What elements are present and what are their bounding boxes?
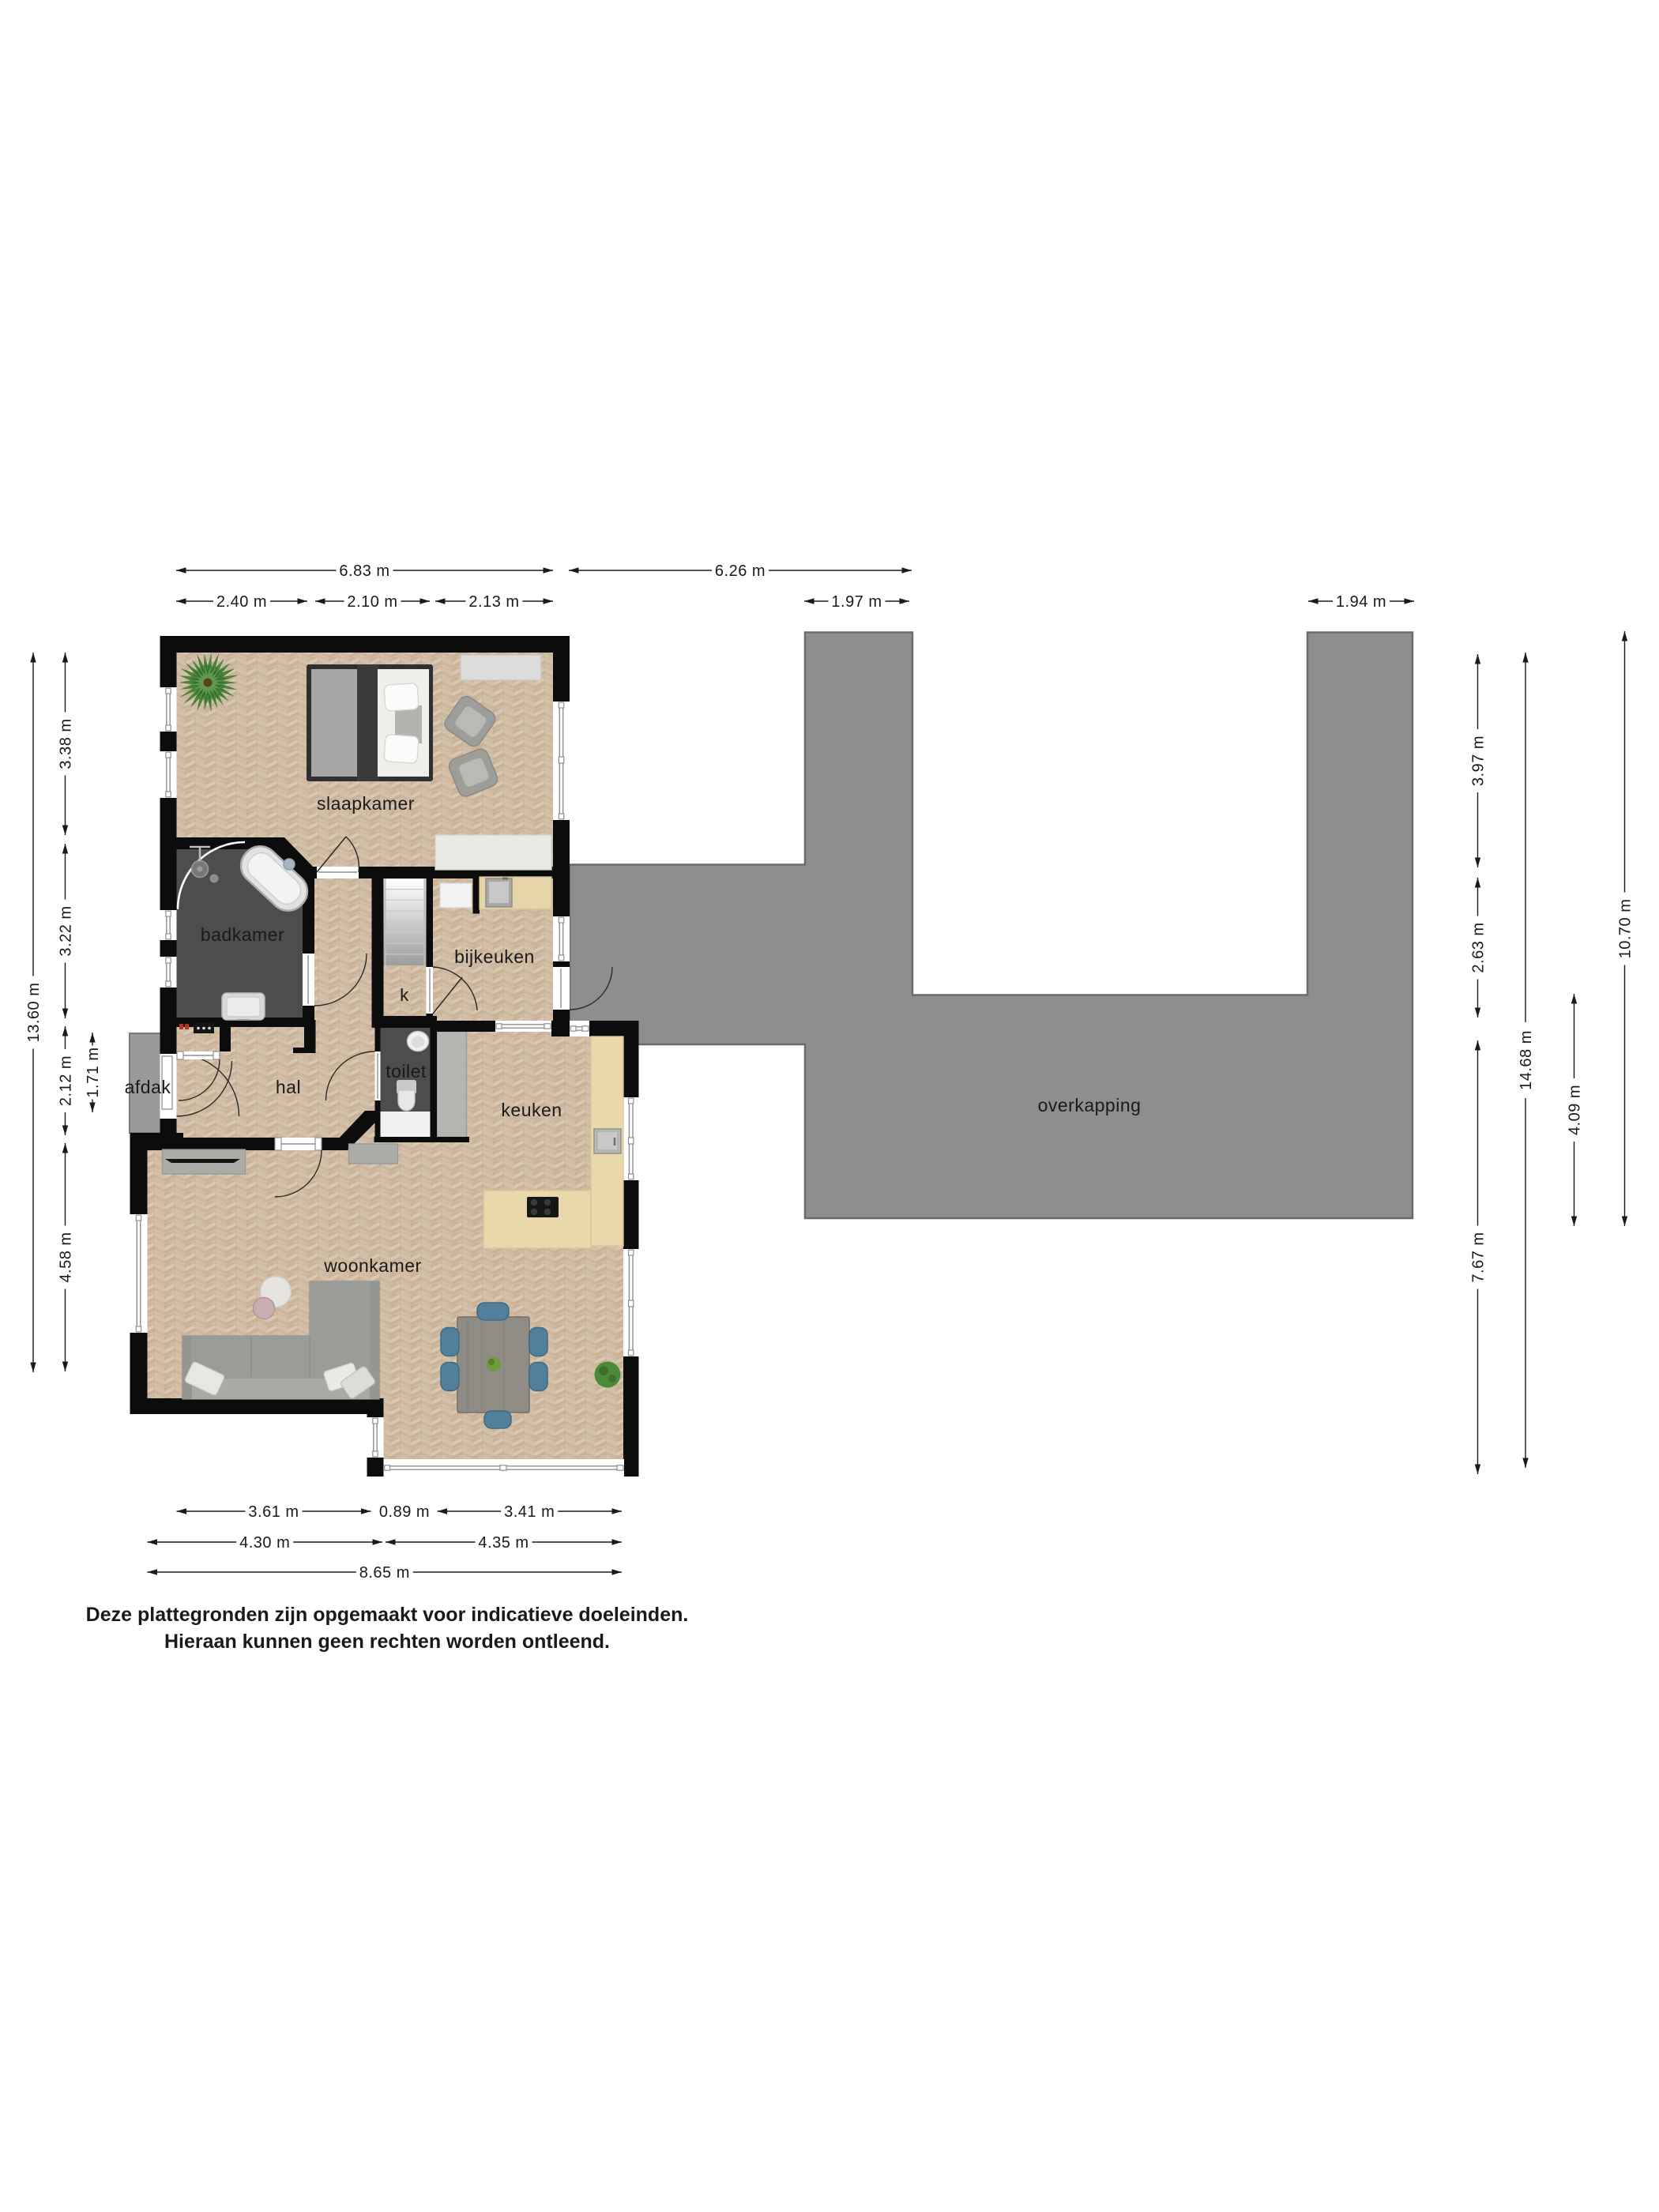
- svg-text:toilet: toilet: [386, 1061, 427, 1082]
- svg-text:7.67 m: 7.67 m: [1470, 1232, 1488, 1282]
- svg-text:2.12 m: 2.12 m: [58, 1055, 75, 1106]
- svg-text:2.63 m: 2.63 m: [1470, 922, 1488, 972]
- svg-text:8.65 m: 8.65 m: [359, 1564, 410, 1582]
- svg-text:6.26 m: 6.26 m: [715, 562, 766, 580]
- svg-text:Deze plattegronden zijn opgema: Deze plattegronden zijn opgemaakt voor i…: [86, 1604, 689, 1626]
- svg-text:4.30 m: 4.30 m: [239, 1534, 290, 1552]
- svg-text:keuken: keuken: [501, 1100, 562, 1120]
- svg-text:2.40 m: 2.40 m: [216, 593, 267, 611]
- svg-text:2.10 m: 2.10 m: [347, 593, 397, 611]
- svg-text:4.35 m: 4.35 m: [478, 1534, 529, 1552]
- svg-text:woonkamer: woonkamer: [323, 1255, 421, 1276]
- svg-text:slaapkamer: slaapkamer: [317, 793, 415, 814]
- svg-text:1.94 m: 1.94 m: [1336, 593, 1386, 611]
- svg-text:1.71 m: 1.71 m: [85, 1047, 102, 1097]
- svg-text:1.97 m: 1.97 m: [831, 593, 882, 611]
- svg-text:3.38 m: 3.38 m: [58, 718, 75, 769]
- svg-text:3.22 m: 3.22 m: [58, 905, 75, 956]
- svg-text:4.09 m: 4.09 m: [1567, 1085, 1584, 1135]
- svg-text:Hieraan kunnen geen rechten wo: Hieraan kunnen geen rechten worden ontle…: [164, 1631, 610, 1653]
- svg-text:10.70 m: 10.70 m: [1617, 899, 1635, 959]
- svg-text:hal: hal: [276, 1077, 301, 1097]
- svg-text:4.58 m: 4.58 m: [58, 1232, 75, 1282]
- svg-text:2.13 m: 2.13 m: [468, 593, 519, 611]
- svg-text:overkapping: overkapping: [1038, 1095, 1142, 1115]
- svg-text:0.89 m: 0.89 m: [379, 1503, 430, 1521]
- svg-text:3.97 m: 3.97 m: [1470, 735, 1488, 786]
- svg-text:k: k: [400, 985, 409, 1005]
- svg-text:badkamer: badkamer: [201, 924, 284, 945]
- svg-text:3.41 m: 3.41 m: [504, 1503, 555, 1521]
- svg-text:13.60 m: 13.60 m: [25, 983, 43, 1043]
- svg-text:afdak: afdak: [125, 1077, 171, 1097]
- svg-text:bijkeuken: bijkeuken: [454, 946, 535, 967]
- svg-text:3.61 m: 3.61 m: [248, 1503, 299, 1521]
- svg-text:6.83 m: 6.83 m: [339, 562, 389, 580]
- svg-text:14.68 m: 14.68 m: [1518, 1030, 1535, 1090]
